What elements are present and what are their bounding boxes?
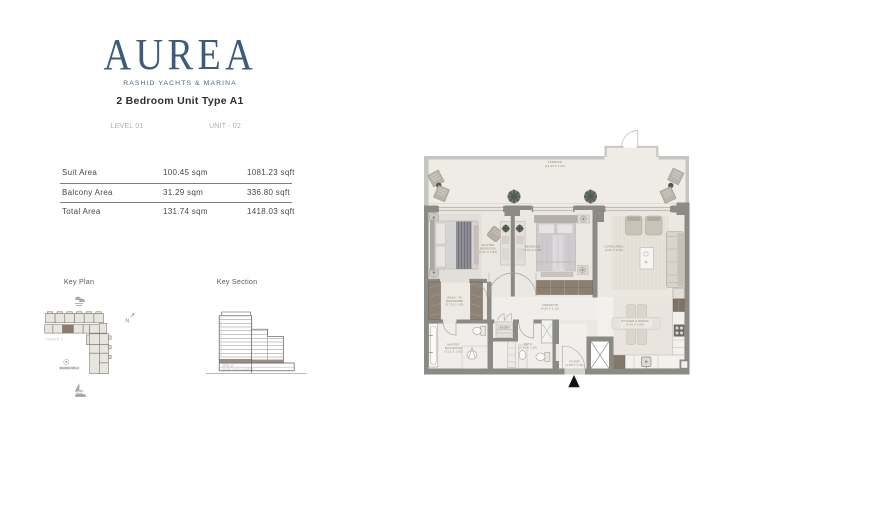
svg-text:BEDROOM: BEDROOM: [525, 245, 541, 249]
svg-text:04: 04: [220, 348, 222, 350]
svg-text:LIVING AREA: LIVING AREA: [605, 245, 624, 249]
svg-text:TOWER 1: TOWER 1: [45, 337, 63, 341]
svg-text:KITCHEN & DINING: KITCHEN & DINING: [621, 319, 649, 323]
svg-text:10: 10: [220, 325, 222, 327]
svg-text:07: 07: [220, 337, 222, 339]
svg-text:(14.40 X 2.00): (14.40 X 2.00): [545, 164, 565, 168]
svg-text:BEDROOM: BEDROOM: [480, 247, 496, 251]
svg-text:FOYER: FOYER: [569, 360, 579, 364]
svg-text:(1.96 X 2.20): (1.96 X 2.20): [519, 346, 537, 350]
svg-text:03: 03: [220, 352, 222, 354]
svg-text:MASTER: MASTER: [447, 342, 459, 346]
svg-text:(1.86 X 1.90): (1.86 X 1.90): [565, 363, 583, 367]
svg-text:08: 08: [220, 333, 222, 335]
svg-text:(4.60 X 3.40): (4.60 X 3.40): [605, 248, 623, 252]
svg-text:WARDROBE: WARDROBE: [446, 299, 463, 303]
svg-text:12: 12: [220, 318, 222, 320]
svg-text:06: 06: [220, 340, 222, 342]
svg-text:02: 02: [220, 355, 222, 357]
svg-text:N: N: [125, 318, 129, 324]
svg-text:09: 09: [220, 329, 222, 331]
svg-text:TERRACE: TERRACE: [548, 160, 562, 164]
svg-text:(4.09 X 3.05): (4.09 X 3.05): [626, 323, 644, 327]
svg-text:MASTER: MASTER: [482, 243, 494, 247]
svg-text:(3.15 X 1.60): (3.15 X 1.60): [444, 350, 462, 354]
svg-text:BATHROOM: BATHROOM: [445, 346, 462, 350]
svg-text:05: 05: [220, 344, 222, 346]
svg-text:BATH: BATH: [524, 342, 532, 346]
svg-text:(4.60 X 3.95): (4.60 X 3.95): [479, 250, 497, 254]
svg-text:LEVEL 01: LEVEL 01: [222, 364, 234, 368]
svg-text:(3.70 X 1.60): (3.70 X 1.60): [445, 303, 463, 307]
svg-text:11: 11: [220, 322, 222, 324]
svg-text:(4.09 X 1.10): (4.09 X 1.10): [541, 307, 559, 311]
svg-text:RASHID YACHTS & MARINA: RASHID YACHTS & MARINA: [222, 368, 254, 371]
svg-text:(3.60 X 3.95): (3.60 X 3.95): [523, 248, 541, 252]
svg-text:MARINA WALK: MARINA WALK: [60, 366, 79, 370]
svg-text:MARINA: MARINA: [76, 394, 86, 398]
svg-text:LAUNDRY: LAUNDRY: [499, 326, 511, 329]
svg-text:CORRIDOR: CORRIDOR: [542, 303, 558, 307]
svg-text:WALK - IN: WALK - IN: [447, 295, 461, 299]
